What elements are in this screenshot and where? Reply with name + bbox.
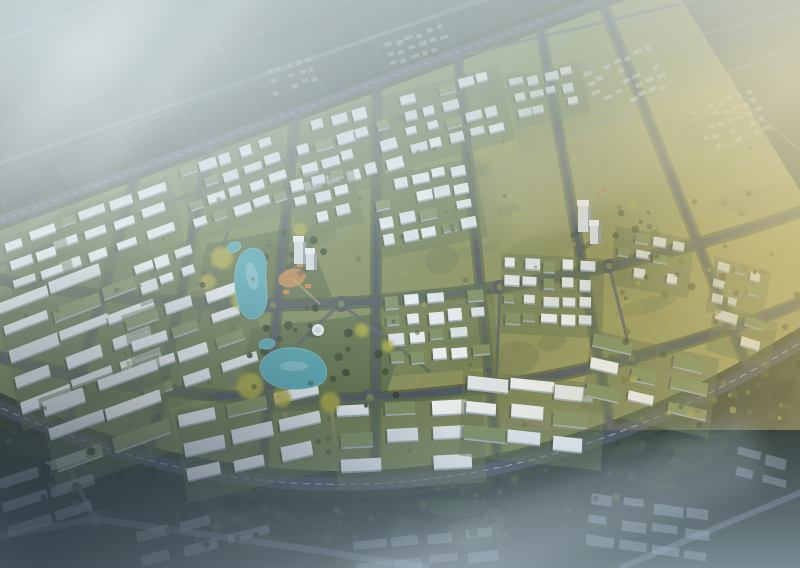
- tone-overlay: [0, 0, 800, 568]
- scene-canvas: [0, 0, 800, 568]
- atmosphere-layer: [0, 0, 800, 568]
- aerial-masterplan-rendering: [0, 0, 800, 568]
